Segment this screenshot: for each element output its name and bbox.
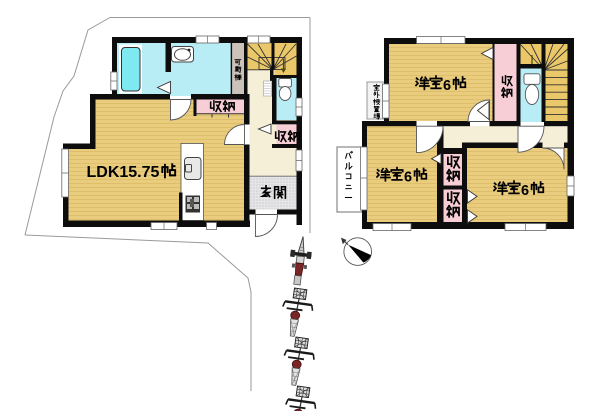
svg-text:6: 6: [404, 170, 412, 186]
svg-text:6: 6: [443, 78, 451, 94]
svg-text:LDK15.75: LDK15.75: [87, 164, 160, 181]
svg-text:6: 6: [521, 183, 529, 199]
